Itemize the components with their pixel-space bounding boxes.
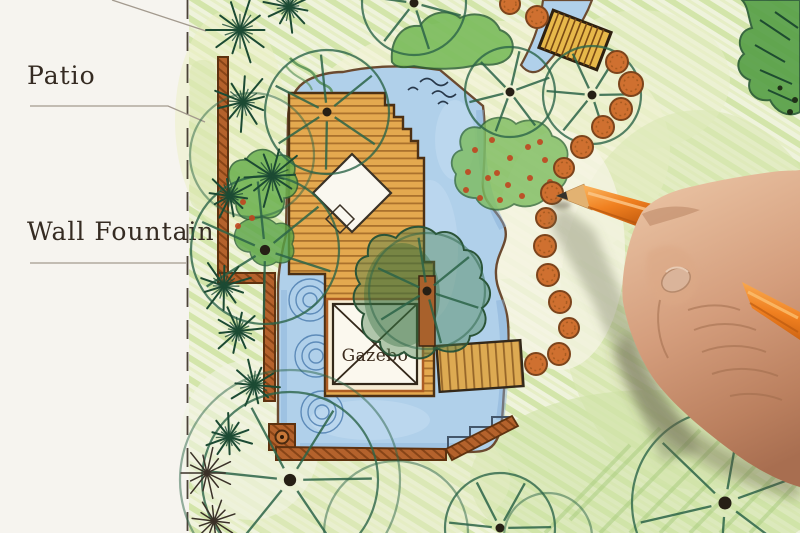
berry-dot bbox=[542, 157, 548, 163]
berry-dot bbox=[249, 215, 255, 221]
berry-dot bbox=[494, 170, 500, 176]
stepping-stone bbox=[526, 6, 548, 28]
berry-dot bbox=[507, 155, 513, 161]
berry-dot bbox=[472, 147, 478, 153]
patio-label: Patio bbox=[27, 61, 96, 90]
stepping-stone bbox=[619, 72, 643, 96]
berry-dot bbox=[497, 197, 503, 203]
stepping-stone bbox=[571, 136, 593, 158]
berry-dot bbox=[527, 175, 533, 181]
berry-dot bbox=[463, 187, 469, 193]
berry-dot bbox=[489, 137, 495, 143]
stepping-stone bbox=[525, 353, 547, 375]
wall-fountain-label: Wall Fountain bbox=[27, 217, 215, 246]
stepping-stone bbox=[592, 116, 614, 138]
stepping-stone bbox=[606, 51, 628, 73]
stepping-stone bbox=[500, 0, 520, 14]
berry-dot bbox=[525, 144, 531, 150]
stepping-stone bbox=[548, 343, 570, 365]
stepping-stone bbox=[559, 318, 579, 338]
berry-dot bbox=[477, 195, 483, 201]
berry-dot bbox=[465, 169, 471, 175]
stepping-stone bbox=[541, 182, 563, 204]
plan-drawing: Patio Wall Fountain bbox=[0, 0, 800, 533]
stepping-stone bbox=[549, 291, 571, 313]
wall-feature-drain bbox=[276, 431, 289, 444]
berry-dot bbox=[505, 182, 511, 188]
stepping-stone bbox=[537, 264, 559, 286]
stepping-stone bbox=[534, 235, 556, 257]
berry-dot bbox=[519, 193, 525, 199]
stepping-stone bbox=[610, 98, 632, 120]
berry-dot bbox=[235, 223, 241, 229]
landscape-plan-photo: Patio Wall Fountain bbox=[0, 0, 800, 533]
berry-dot bbox=[537, 139, 543, 145]
stepping-stone bbox=[554, 158, 574, 178]
berry-dot bbox=[485, 175, 491, 181]
berry-dot bbox=[240, 199, 246, 205]
